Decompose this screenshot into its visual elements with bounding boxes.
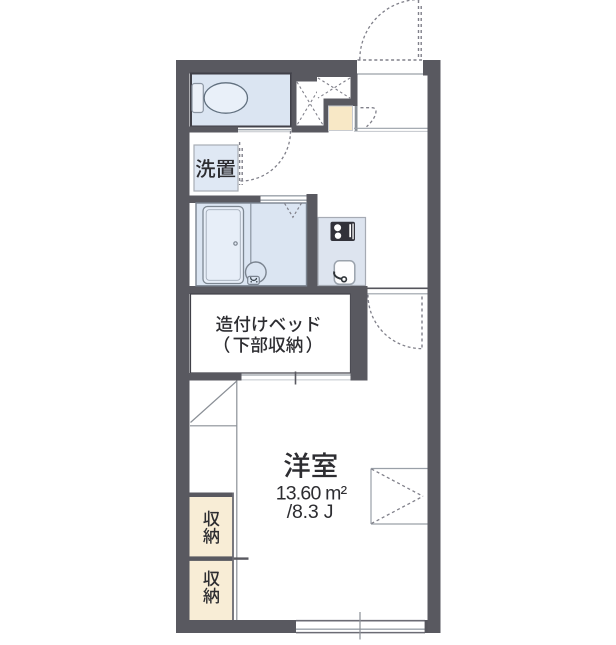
svg-text:/8.3 J: /8.3 J	[287, 501, 334, 523]
